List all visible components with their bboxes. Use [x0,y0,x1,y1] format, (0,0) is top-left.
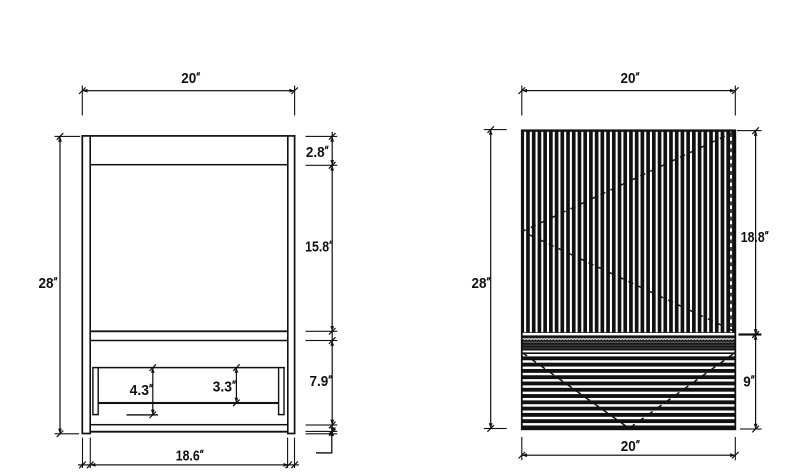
svg-text:28: 28 [38,275,53,292]
svg-text:20: 20 [620,71,635,88]
svg-text:20: 20 [621,438,636,455]
svg-text:4.3: 4.3 [130,382,149,399]
svg-text:7.9: 7.9 [309,374,328,391]
svg-text:3.3: 3.3 [213,379,232,396]
svg-text:15.8: 15.8 [305,238,329,254]
svg-text:2.8: 2.8 [306,144,325,161]
svg-text:18.6: 18.6 [176,448,200,464]
svg-text:9: 9 [743,374,751,391]
svg-text:28: 28 [471,275,486,292]
svg-text:20: 20 [181,71,196,88]
svg-text:18.8: 18.8 [741,229,765,245]
